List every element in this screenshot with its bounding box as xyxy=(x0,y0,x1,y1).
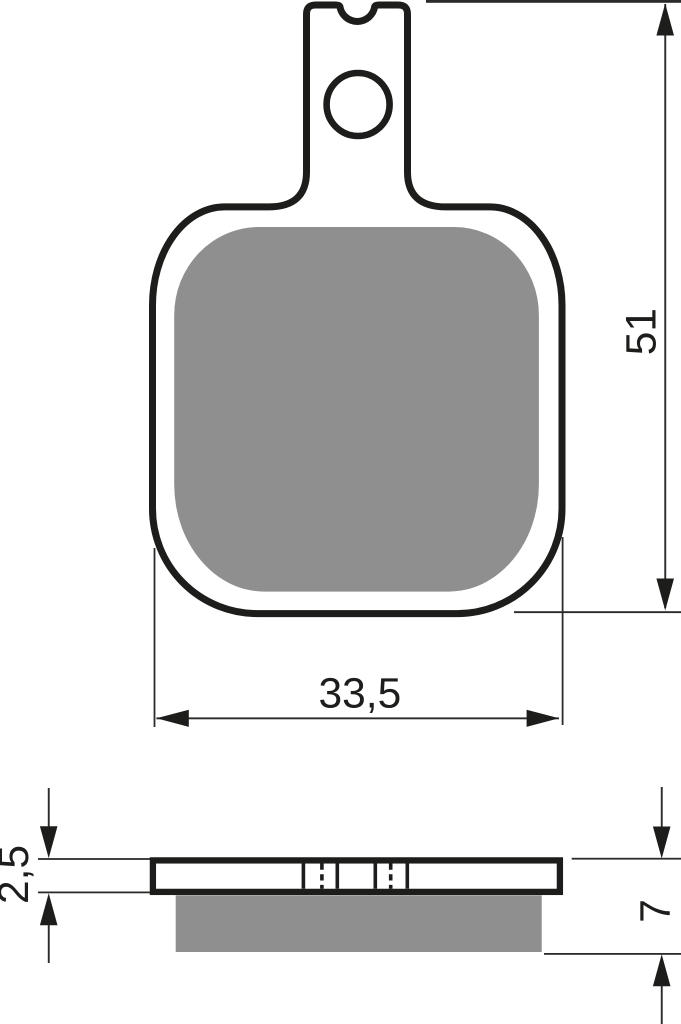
svg-text:2,5: 2,5 xyxy=(0,845,38,904)
svg-text:7: 7 xyxy=(633,899,680,923)
svg-text:51: 51 xyxy=(619,308,666,355)
svg-text:33,5: 33,5 xyxy=(319,671,402,718)
